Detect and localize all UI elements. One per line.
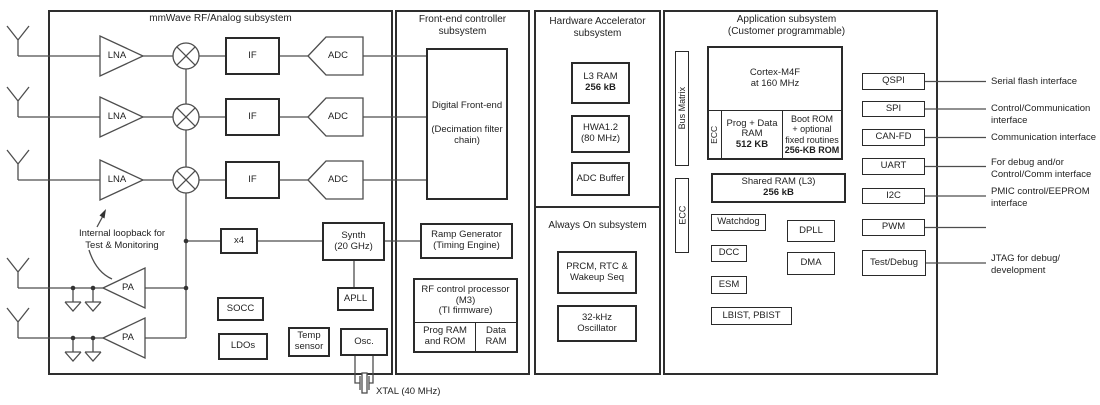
rx1-antenna-icon — [7, 26, 29, 56]
cortex-m4f-label: Cortex-M4Fat 160 MHz — [709, 48, 841, 110]
tx2-ground-icon — [65, 338, 81, 361]
qspi-box: QSPI — [862, 73, 925, 90]
lbist-pbist-box: LBIST, PBIST — [711, 307, 792, 325]
loopback-curve — [89, 250, 112, 279]
uart-interface-label: For debug and/orControl/Comm interface — [991, 157, 1091, 180]
qspi-interface-label: Serial flash interface — [991, 76, 1077, 88]
lna1-label: LNA — [102, 50, 132, 62]
ldos-box: LDOs — [218, 333, 268, 360]
mixer3-icon — [173, 167, 199, 193]
rx2-antenna-icon — [7, 87, 29, 117]
ecc-tall-box: ECC — [675, 178, 689, 253]
temp-sensor-box: Tempsensor — [288, 327, 330, 357]
diagram-lines-layer — [0, 0, 1100, 405]
rf-control-processor-label: RF control processor (M3) (TI firmware) — [415, 280, 516, 322]
mixer1-icon — [173, 43, 199, 69]
osc-32khz-box: 32-kHzOscillator — [557, 305, 637, 342]
spi-interface-label: Control/Communicationinterface — [991, 103, 1090, 126]
junction-dot — [71, 286, 76, 291]
adc3-label: ADC — [319, 174, 357, 186]
pa1-label: PA — [112, 282, 144, 294]
pwm-box: PWM — [862, 219, 925, 236]
prog-data-ram-cell: Prog + Data RAM 512 KB — [722, 111, 783, 158]
digital-frontend-box: Digital Front-end (Decimation filter cha… — [426, 48, 508, 200]
canfd-interface-label: Communication interface — [991, 132, 1096, 144]
cortex-m4f-box: Cortex-M4Fat 160 MHz ECC Prog + Data RAM… — [707, 46, 843, 160]
tx2-antenna-icon — [7, 308, 29, 338]
loopback-arrowhead-icon — [100, 209, 107, 219]
pa2-label: PA — [112, 332, 144, 344]
app-title: Application subsystem(Customer programma… — [664, 14, 909, 38]
xtal-label: XTAL (40 MHz) — [376, 386, 440, 398]
loopback-note: Internal loopback forTest & Monitoring — [60, 228, 184, 251]
if1-box: IF — [225, 37, 280, 75]
uart-box: UART — [862, 158, 925, 175]
crystal-icon — [355, 356, 373, 393]
prcm-box: PRCM, RTC &Wakeup Seq — [557, 251, 637, 294]
junction-dot — [184, 239, 189, 244]
dma-box: DMA — [787, 252, 835, 275]
hwaccel-title: Hardware Acceleratorsubsystem — [534, 16, 661, 40]
esm-box: ESM — [711, 276, 747, 294]
dpll-box: DPLL — [787, 220, 835, 242]
tx1-ground-icon — [65, 288, 81, 311]
lna2-label: LNA — [102, 111, 132, 123]
ramp-generator-box: Ramp Generator(Timing Engine) — [420, 223, 513, 259]
osc-box: Osc. — [340, 328, 388, 356]
prog-ram-rom-cell: Prog RAMand ROM — [415, 323, 476, 351]
test-debug-box: Test/Debug — [862, 250, 926, 276]
if3-box: IF — [225, 161, 280, 199]
mixer2-icon — [173, 104, 199, 130]
hwa-box: HWA1.2(80 MHz) — [571, 115, 630, 153]
dcc-box: DCC — [711, 245, 747, 262]
tx2-ground-icon-2 — [85, 338, 101, 361]
bus-matrix-box: Bus Matrix — [675, 51, 689, 166]
soc-block-diagram: mmWave RF/Analog subsystem Front-end con… — [0, 0, 1100, 405]
rx3-antenna-icon — [7, 150, 29, 180]
ecc-ram-cell: ECC — [709, 111, 722, 158]
apll-box: APLL — [337, 287, 374, 311]
if2-box: IF — [225, 98, 280, 136]
tx1-ground-icon-2 — [85, 288, 101, 311]
data-ram-cell: DataRAM — [476, 323, 516, 351]
watchdog-box: Watchdog — [711, 214, 766, 231]
boot-rom-cell: Boot ROM + optional fixed routines 256-K… — [783, 111, 841, 158]
frontend-title: Front-end controllersubsystem — [395, 14, 530, 38]
i2c-interface-label: PMIC control/EEPROMinterface — [991, 186, 1090, 209]
mmwave-title: mmWave RF/Analog subsystem — [48, 13, 393, 25]
i2c-box: I2C — [862, 188, 925, 204]
x4-multiplier-box: x4 — [220, 228, 258, 254]
adc-buffer-box: ADC Buffer — [571, 162, 630, 196]
lna3-label: LNA — [102, 174, 132, 186]
alwayson-title: Always On subsystem — [534, 220, 661, 232]
junction-dot — [184, 286, 189, 291]
adc1-label: ADC — [319, 50, 357, 62]
spi-box: SPI — [862, 101, 925, 117]
shared-ram-box: Shared RAM (L3)256 kB — [711, 173, 846, 203]
canfd-box: CAN-FD — [862, 129, 925, 146]
junction-dot — [91, 286, 96, 291]
adc2-label: ADC — [319, 111, 357, 123]
jtag-interface-label: JTAG for debug/development — [991, 253, 1060, 276]
tx1-antenna-icon — [7, 258, 29, 288]
junction-dot — [91, 336, 96, 341]
l3-ram-box: L3 RAM256 kB — [571, 62, 630, 104]
rf-control-processor-box: RF control processor (M3) (TI firmware) … — [413, 278, 518, 353]
junction-dot — [71, 336, 76, 341]
synth-box: Synth(20 GHz) — [322, 222, 385, 261]
socc-box: SOCC — [217, 297, 264, 321]
